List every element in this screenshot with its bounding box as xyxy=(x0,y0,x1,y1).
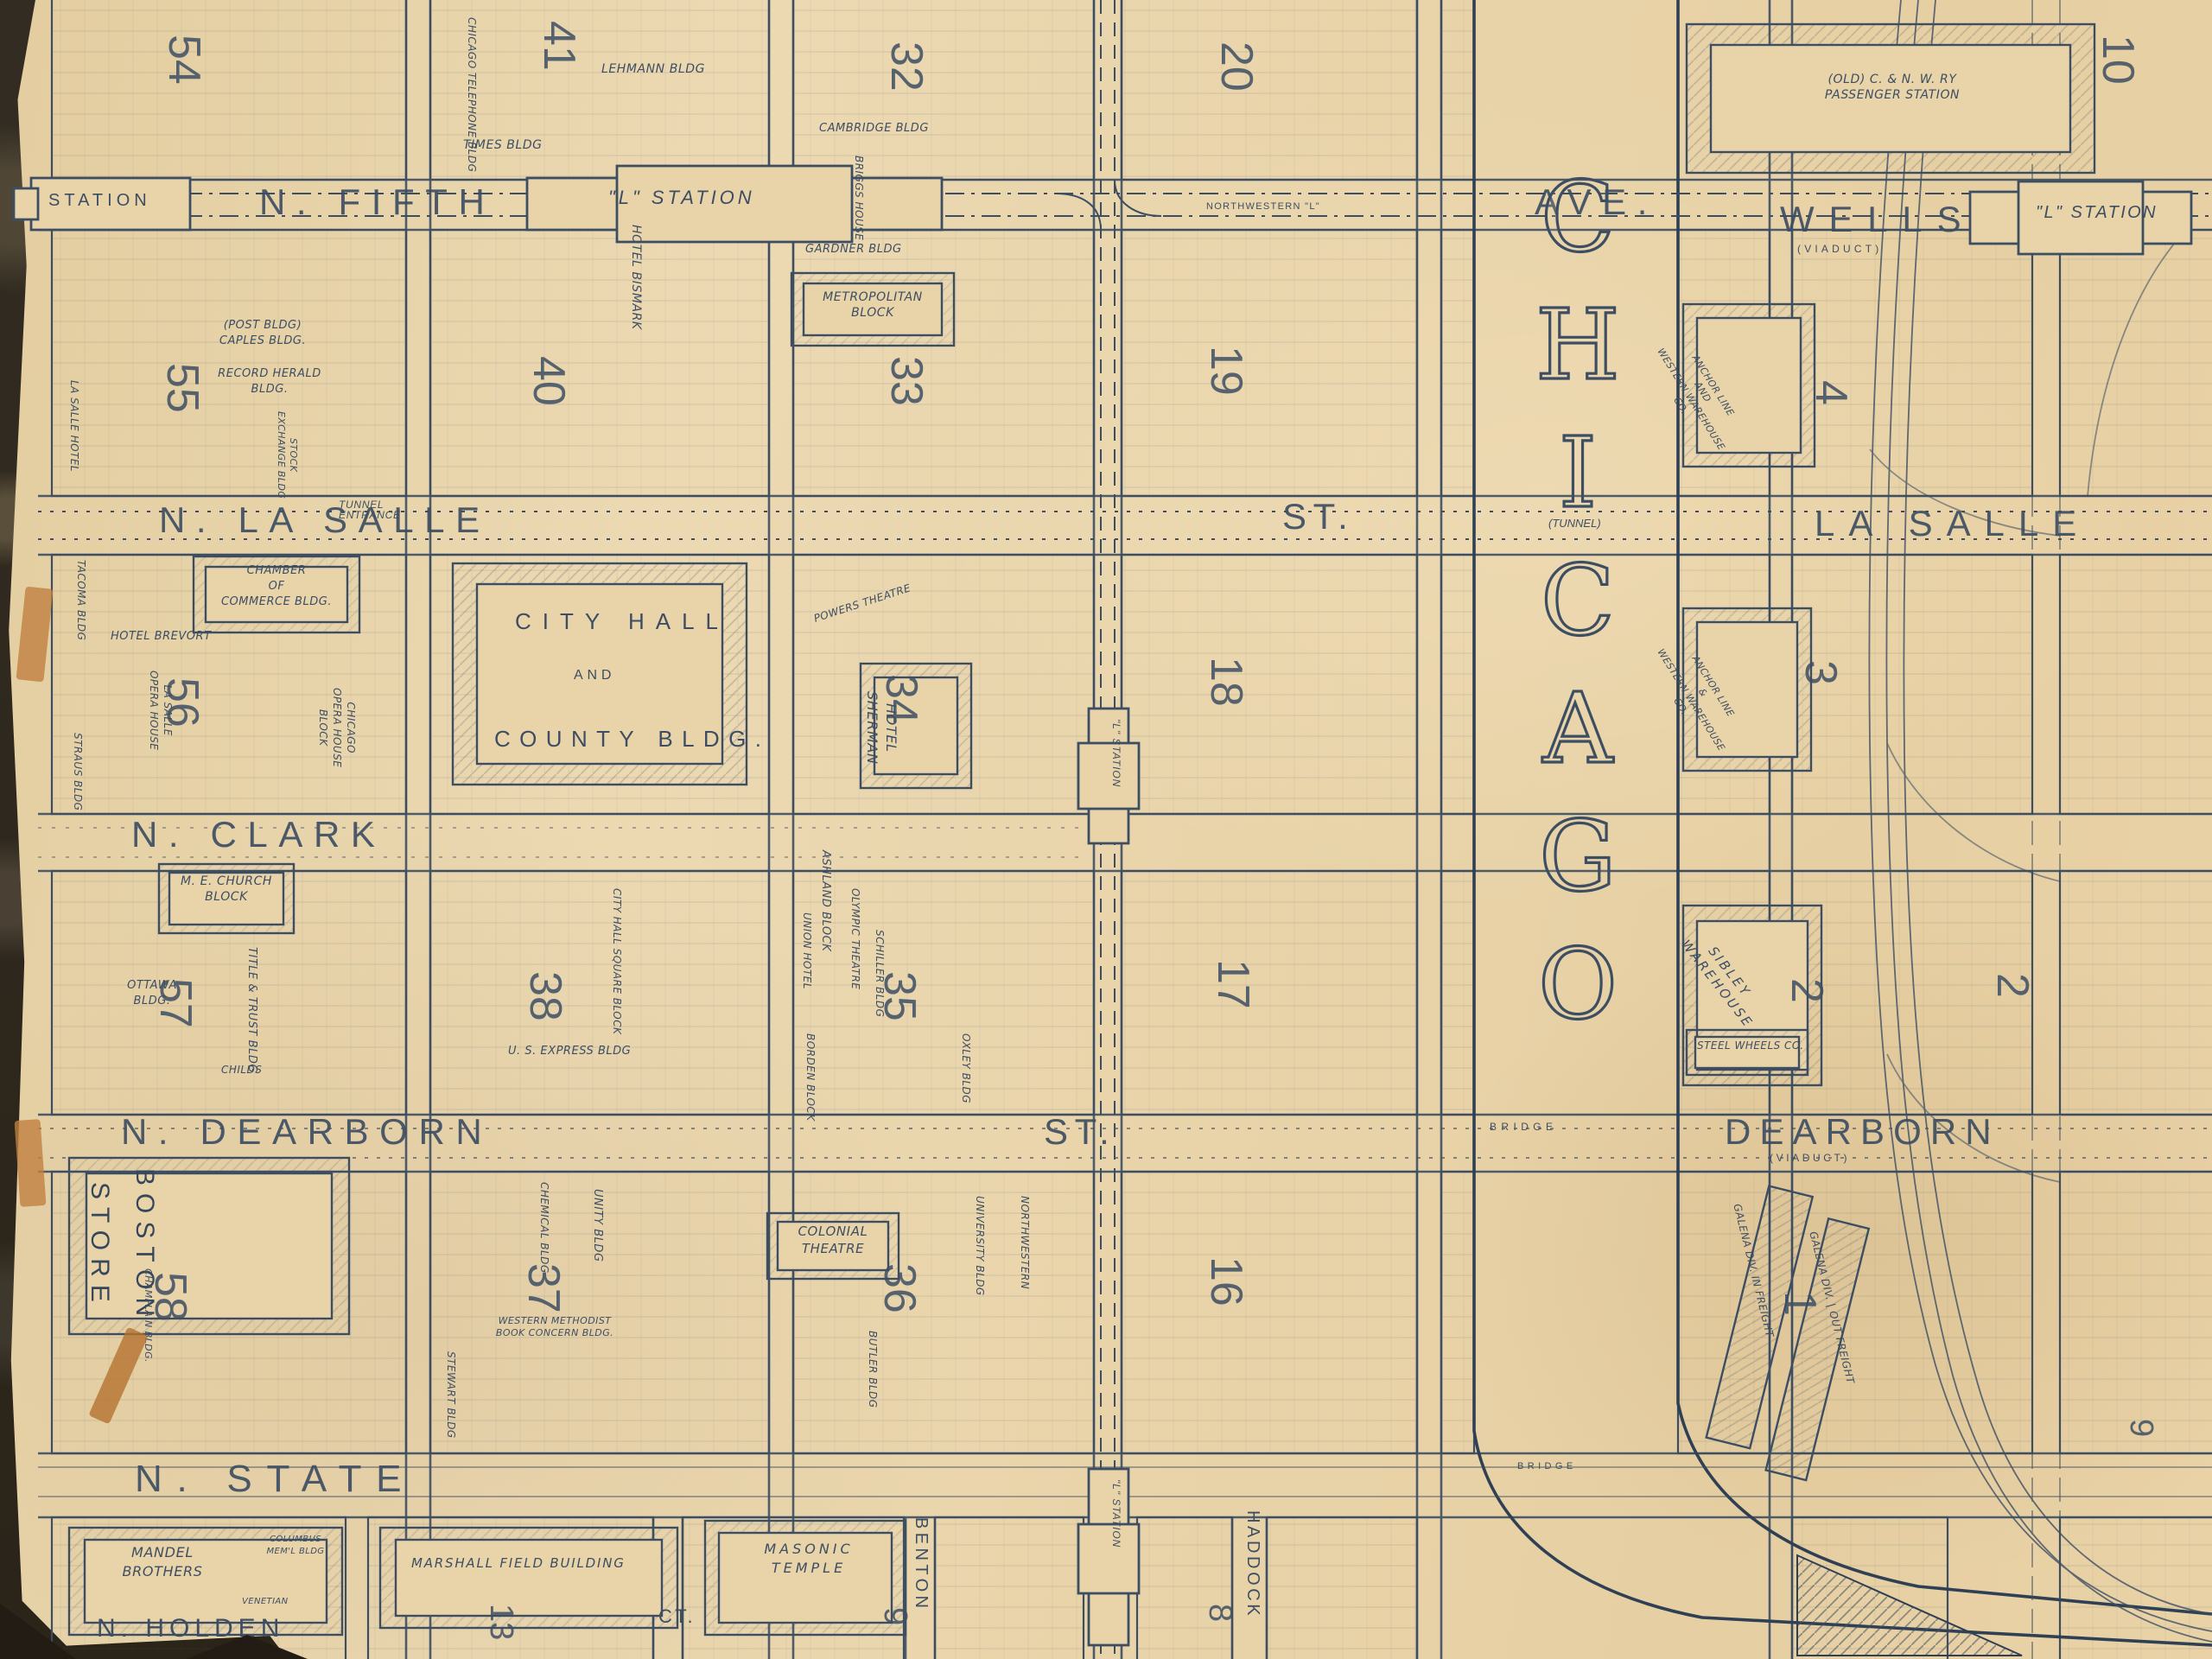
bldg-briggs-house: BRIGGS HOUSE xyxy=(850,156,864,240)
bldg-western-methodist: WESTERN METHODIST BOOK CONCERN BLDG. xyxy=(460,1317,650,1343)
bldg-mandel: MANDEL BROTHERS xyxy=(93,1545,232,1582)
dearborn-bridge-label: BRIDGE xyxy=(1490,1123,1557,1134)
bldg-childs: CHILDS xyxy=(221,1065,262,1078)
block-number-18: 18 xyxy=(1199,657,1253,707)
bldg-lehmann: LEHMANN BLDG xyxy=(601,62,705,79)
block-number-33: 33 xyxy=(880,356,933,406)
street-wells: WELLS xyxy=(1780,200,1975,242)
street-lasalle-st: ST. xyxy=(1282,498,1354,539)
bldg-venetian: VENETIAN xyxy=(242,1597,289,1609)
street-n-dearborn: N. DEARBORN xyxy=(121,1113,493,1154)
block-number-16: 16 xyxy=(1199,1256,1253,1306)
bldg-columbus: COLUMBUS MEM'L BLDG xyxy=(252,1535,339,1558)
bldg-colonial: COLONIAL THEATRE xyxy=(778,1224,888,1259)
bldg-straus: STRAUS BLDG xyxy=(69,733,83,810)
bldg-chamber: CHAMBER OF COMMERCE BLDG. xyxy=(204,563,349,609)
bldg-cnw-station: (OLD) C. & N. W. RY PASSENGER STATION xyxy=(1745,73,2039,105)
station-label: STATION xyxy=(48,192,151,211)
street-n-clark: N. CLARK xyxy=(131,816,386,857)
bldg-steel-wheels: STEEL WHEELS CO. xyxy=(1697,1040,1804,1054)
bldg-chemical: CHEMICAL BLDG xyxy=(536,1182,550,1274)
bldg-unity: UNITY BLDG xyxy=(589,1189,605,1262)
block-number-8: 8 xyxy=(1199,1604,1237,1622)
bldg-us-express: U. S. EXPRESS BLDG xyxy=(508,1044,631,1059)
street-n-fifth: N. FIFTH xyxy=(259,183,495,225)
block-number-36: 36 xyxy=(873,1263,926,1313)
river-chicago-word: C H I C A G O xyxy=(1517,156,1638,1051)
bldg-tacoma: TACOMA BLDG xyxy=(73,560,86,640)
street-dearborn-east: DEARBORN xyxy=(1725,1113,2000,1154)
bldg-post-caples: (POST BLDG) CAPLES BLDG. xyxy=(180,318,346,348)
bldg-hotel-bismark: HOTEL BISMARK xyxy=(626,225,643,330)
bldg-chicago-opera: CHICAGO OPERA HOUSE BLOCK xyxy=(314,688,356,767)
river-letter: A xyxy=(1543,667,1613,795)
bldg-store: STORE xyxy=(85,1182,114,1310)
block-number-54: 54 xyxy=(157,35,211,85)
bldg-schiller: SCHILLER BLDG xyxy=(871,930,885,1017)
bldg-metropolitan: METROPOLITAN BLOCK xyxy=(805,290,940,323)
river-letter: G xyxy=(1539,795,1616,923)
street-holden-ct: CT. xyxy=(658,1607,696,1628)
river-letter: O xyxy=(1538,923,1618,1051)
bldg-northwestern: NORTHWESTERN xyxy=(1016,1196,1030,1289)
block-number-41: 41 xyxy=(532,21,586,71)
river-letter: C xyxy=(1541,156,1615,283)
wells-viaduct-note: (VIADUCT) xyxy=(1797,245,1882,256)
block-number-32: 32 xyxy=(880,41,933,92)
block-number-9-east: 9 xyxy=(2120,1419,2158,1437)
bldg-borden: BORDEN BLOCK xyxy=(802,1033,816,1122)
block-number-10: 10 xyxy=(2091,35,2145,85)
northwestern-l-label: NORTHWESTERN "L" xyxy=(1206,202,1320,213)
bldg-gardner: GARDNER BLDG xyxy=(805,242,902,257)
bldg-butler: BUTLER BLDG xyxy=(864,1331,878,1408)
bldg-lasalle-hotel: LA SALLE HOTEL xyxy=(66,380,79,472)
bldg-county: COUNTY BLDG. xyxy=(494,726,770,752)
bldg-record-herald: RECORD HERALD BLDG. xyxy=(187,366,353,397)
block-number-4: 4 xyxy=(1804,380,1858,405)
bldg-ottawa: OTTAWA BLDG. xyxy=(107,978,197,1008)
block-number-2b: 2 xyxy=(1986,973,2039,998)
marshall-field-building xyxy=(380,1528,677,1628)
bldg-cambridge: CAMBRIDGE BLDG xyxy=(819,121,929,137)
block-number-38: 38 xyxy=(518,971,572,1021)
dearborn-viaduct-note: (VIADUCT) xyxy=(1770,1154,1850,1165)
bldg-oxley: OXLEY BLDG xyxy=(957,1033,971,1103)
block-number-13: 13 xyxy=(480,1604,518,1640)
bldg-union-hotel: UNION HOTEL xyxy=(798,912,812,989)
bldg-times: TIMES BLDG xyxy=(463,138,543,155)
block-number-9: 9 xyxy=(874,1607,912,1625)
bldg-hotel-sherman: HOTEL SHERMAN xyxy=(861,691,899,765)
l-station-fifth: "L" STATION xyxy=(608,188,755,209)
bldg-title-trust: TITLE & TRUST BLDG xyxy=(244,947,259,1073)
bldg-marshall-field: MARSHALL FIELD BUILDING xyxy=(411,1555,626,1573)
river-letter: I xyxy=(1559,411,1597,539)
l-station-vertical-2: "L" STATION xyxy=(1109,1479,1120,1548)
bldg-university: UNIVERSITY BLDG xyxy=(971,1196,985,1296)
block-number-20: 20 xyxy=(1210,41,1263,92)
street-n-la-salle: N. LA SALLE xyxy=(159,501,491,543)
river-letter: H xyxy=(1535,283,1620,411)
bldg-ashland: ASHLAND BLOCK xyxy=(817,850,833,951)
street-haddock: HADDOCK xyxy=(1243,1510,1262,1618)
bldg-me-church: M. E. CHURCH BLOCK xyxy=(166,874,287,907)
bldg-olympic: OLYMPIC THEATRE xyxy=(847,888,861,989)
map-photo: N. FIFTH STATION "L" STATION NORTHWESTER… xyxy=(0,0,2212,1659)
bldg-masonic: MASONIC TEMPLE xyxy=(743,1541,874,1579)
bldg-city-hall: CITY HALL xyxy=(515,608,729,634)
bldg-lasalle-opera: LA SALLE OPERA HOUSE xyxy=(145,671,173,750)
block-number-19: 19 xyxy=(1199,346,1253,396)
bldg-stock-exchange: STOCK EXCHANGE BLDG xyxy=(271,411,297,499)
bldg-city-hall-and: AND xyxy=(574,667,615,683)
state-bridge-label: BRIDGE xyxy=(1517,1462,1577,1472)
bldg-hotel-brevort: HOTEL BREVORT xyxy=(111,629,212,645)
street-benton: BENTON xyxy=(911,1517,930,1611)
street-dearborn-st: ST. xyxy=(1044,1113,1116,1154)
l-station-vertical-1: "L" STATION xyxy=(1109,719,1120,787)
street-la-salle-east: LA SALLE xyxy=(1815,505,2090,546)
block-number-3: 3 xyxy=(1794,660,1847,685)
river-letter: C xyxy=(1541,539,1615,667)
l-station-wells: "L" STATION xyxy=(2036,204,2158,223)
block-number-17: 17 xyxy=(1206,959,1260,1009)
block-number-2: 2 xyxy=(1780,978,1834,1003)
bldg-city-hall-square: CITY HALL SQUARE BLOCK xyxy=(608,888,622,1034)
block-number-1: 1 xyxy=(1773,1291,1827,1316)
bldg-stewart: STEWART BLDG xyxy=(442,1351,456,1439)
street-n-state: N. STATE xyxy=(135,1457,416,1502)
block-number-40: 40 xyxy=(522,356,575,406)
